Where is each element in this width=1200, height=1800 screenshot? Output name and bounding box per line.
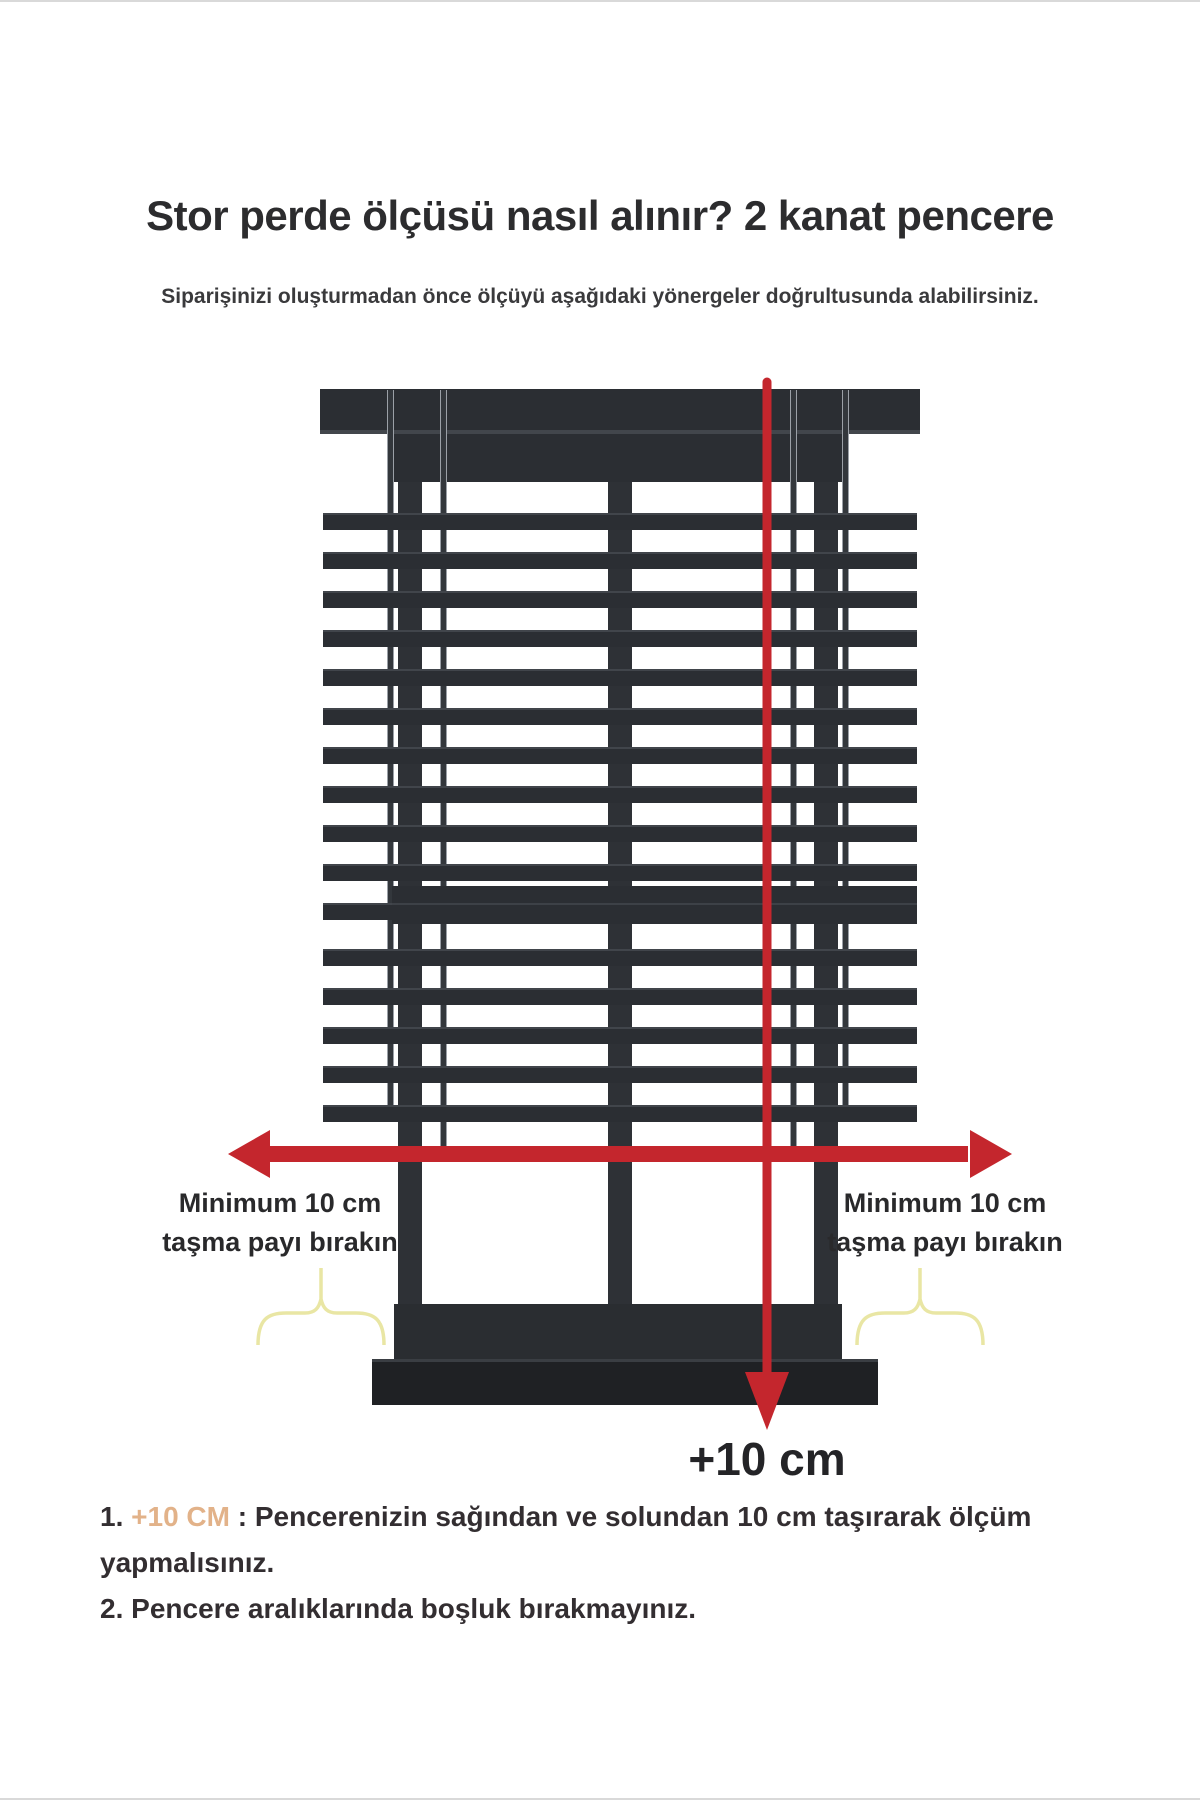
- plus-10-cm-label: +10 cm: [637, 1432, 897, 1486]
- blind-slat: [323, 513, 917, 530]
- left-overhang-label-line1: Minimum 10 cm: [105, 1184, 455, 1223]
- width-arrow-right-head: [970, 1130, 1012, 1178]
- left-overhang-label: Minimum 10 cm taşma payı bırakın: [105, 1184, 455, 1262]
- instruction-1-number: 1.: [100, 1501, 131, 1532]
- instruction-2-number: 2.: [100, 1593, 131, 1624]
- window-bottom-rail: [394, 1304, 842, 1359]
- page-subtitle: Siparişinizi oluşturmadan önce ölçüyü aş…: [0, 285, 1200, 309]
- blind-slat: [323, 825, 917, 842]
- blind-valance: [394, 434, 844, 482]
- page-title: Stor perde ölçüsü nasıl alınır? 2 kanat …: [0, 192, 1200, 240]
- blind-slat: [323, 1027, 917, 1044]
- instruction-item-1: 1. +10 CM : Pencerenizin sağından ve sol…: [100, 1494, 1160, 1586]
- instruction-item-2: 2. Pencere aralıklarında boşluk bırakmay…: [100, 1586, 1160, 1632]
- window-right-post: [814, 452, 838, 1312]
- blind-slat: [323, 1105, 917, 1122]
- blind-slat: [323, 988, 917, 1005]
- blind-slat: [323, 591, 917, 608]
- blind-slat: [323, 864, 917, 881]
- blind-slat: [323, 708, 917, 725]
- blind-slat: [323, 786, 917, 803]
- blind-slat: [323, 903, 392, 920]
- blind-slat: [323, 1066, 917, 1083]
- right-brace-icon: [857, 1268, 983, 1345]
- left-overhang-label-line2: taşma payı bırakın: [105, 1223, 455, 1262]
- blind-slat: [323, 630, 917, 647]
- measurement-guide-infographic: Stor perde ölçüsü nasıl alınır? 2 kanat …: [0, 0, 1200, 1800]
- window-sill: [372, 1359, 878, 1405]
- instructions-list: 1. +10 CM : Pencerenizin sağından ve sol…: [100, 1494, 1160, 1632]
- right-overhang-label-line2: taşma payı bırakın: [770, 1223, 1120, 1262]
- blind-headrail: [320, 389, 920, 434]
- window-left-post: [398, 452, 422, 1312]
- blind-slat: [323, 669, 917, 686]
- instruction-1-highlight: +10 CM: [131, 1501, 230, 1532]
- window-center-post: [608, 452, 632, 1312]
- blind-slat: [323, 747, 917, 764]
- right-overhang-label-line1: Minimum 10 cm: [770, 1184, 1120, 1223]
- blind-slat: [323, 552, 917, 569]
- blind-slat: [323, 949, 917, 966]
- blind-closed-slats-separator: [392, 903, 917, 905]
- right-overhang-label: Minimum 10 cm taşma payı bırakın: [770, 1184, 1120, 1262]
- blind-closed-slats-band: [392, 886, 917, 924]
- width-arrow-left-head: [228, 1130, 270, 1178]
- instruction-1-text: : Pencerenizin sağından ve solundan 10 c…: [100, 1501, 1031, 1578]
- instruction-2-text: Pencere aralıklarında boşluk bırakmayını…: [131, 1593, 696, 1624]
- left-brace-icon: [258, 1268, 384, 1345]
